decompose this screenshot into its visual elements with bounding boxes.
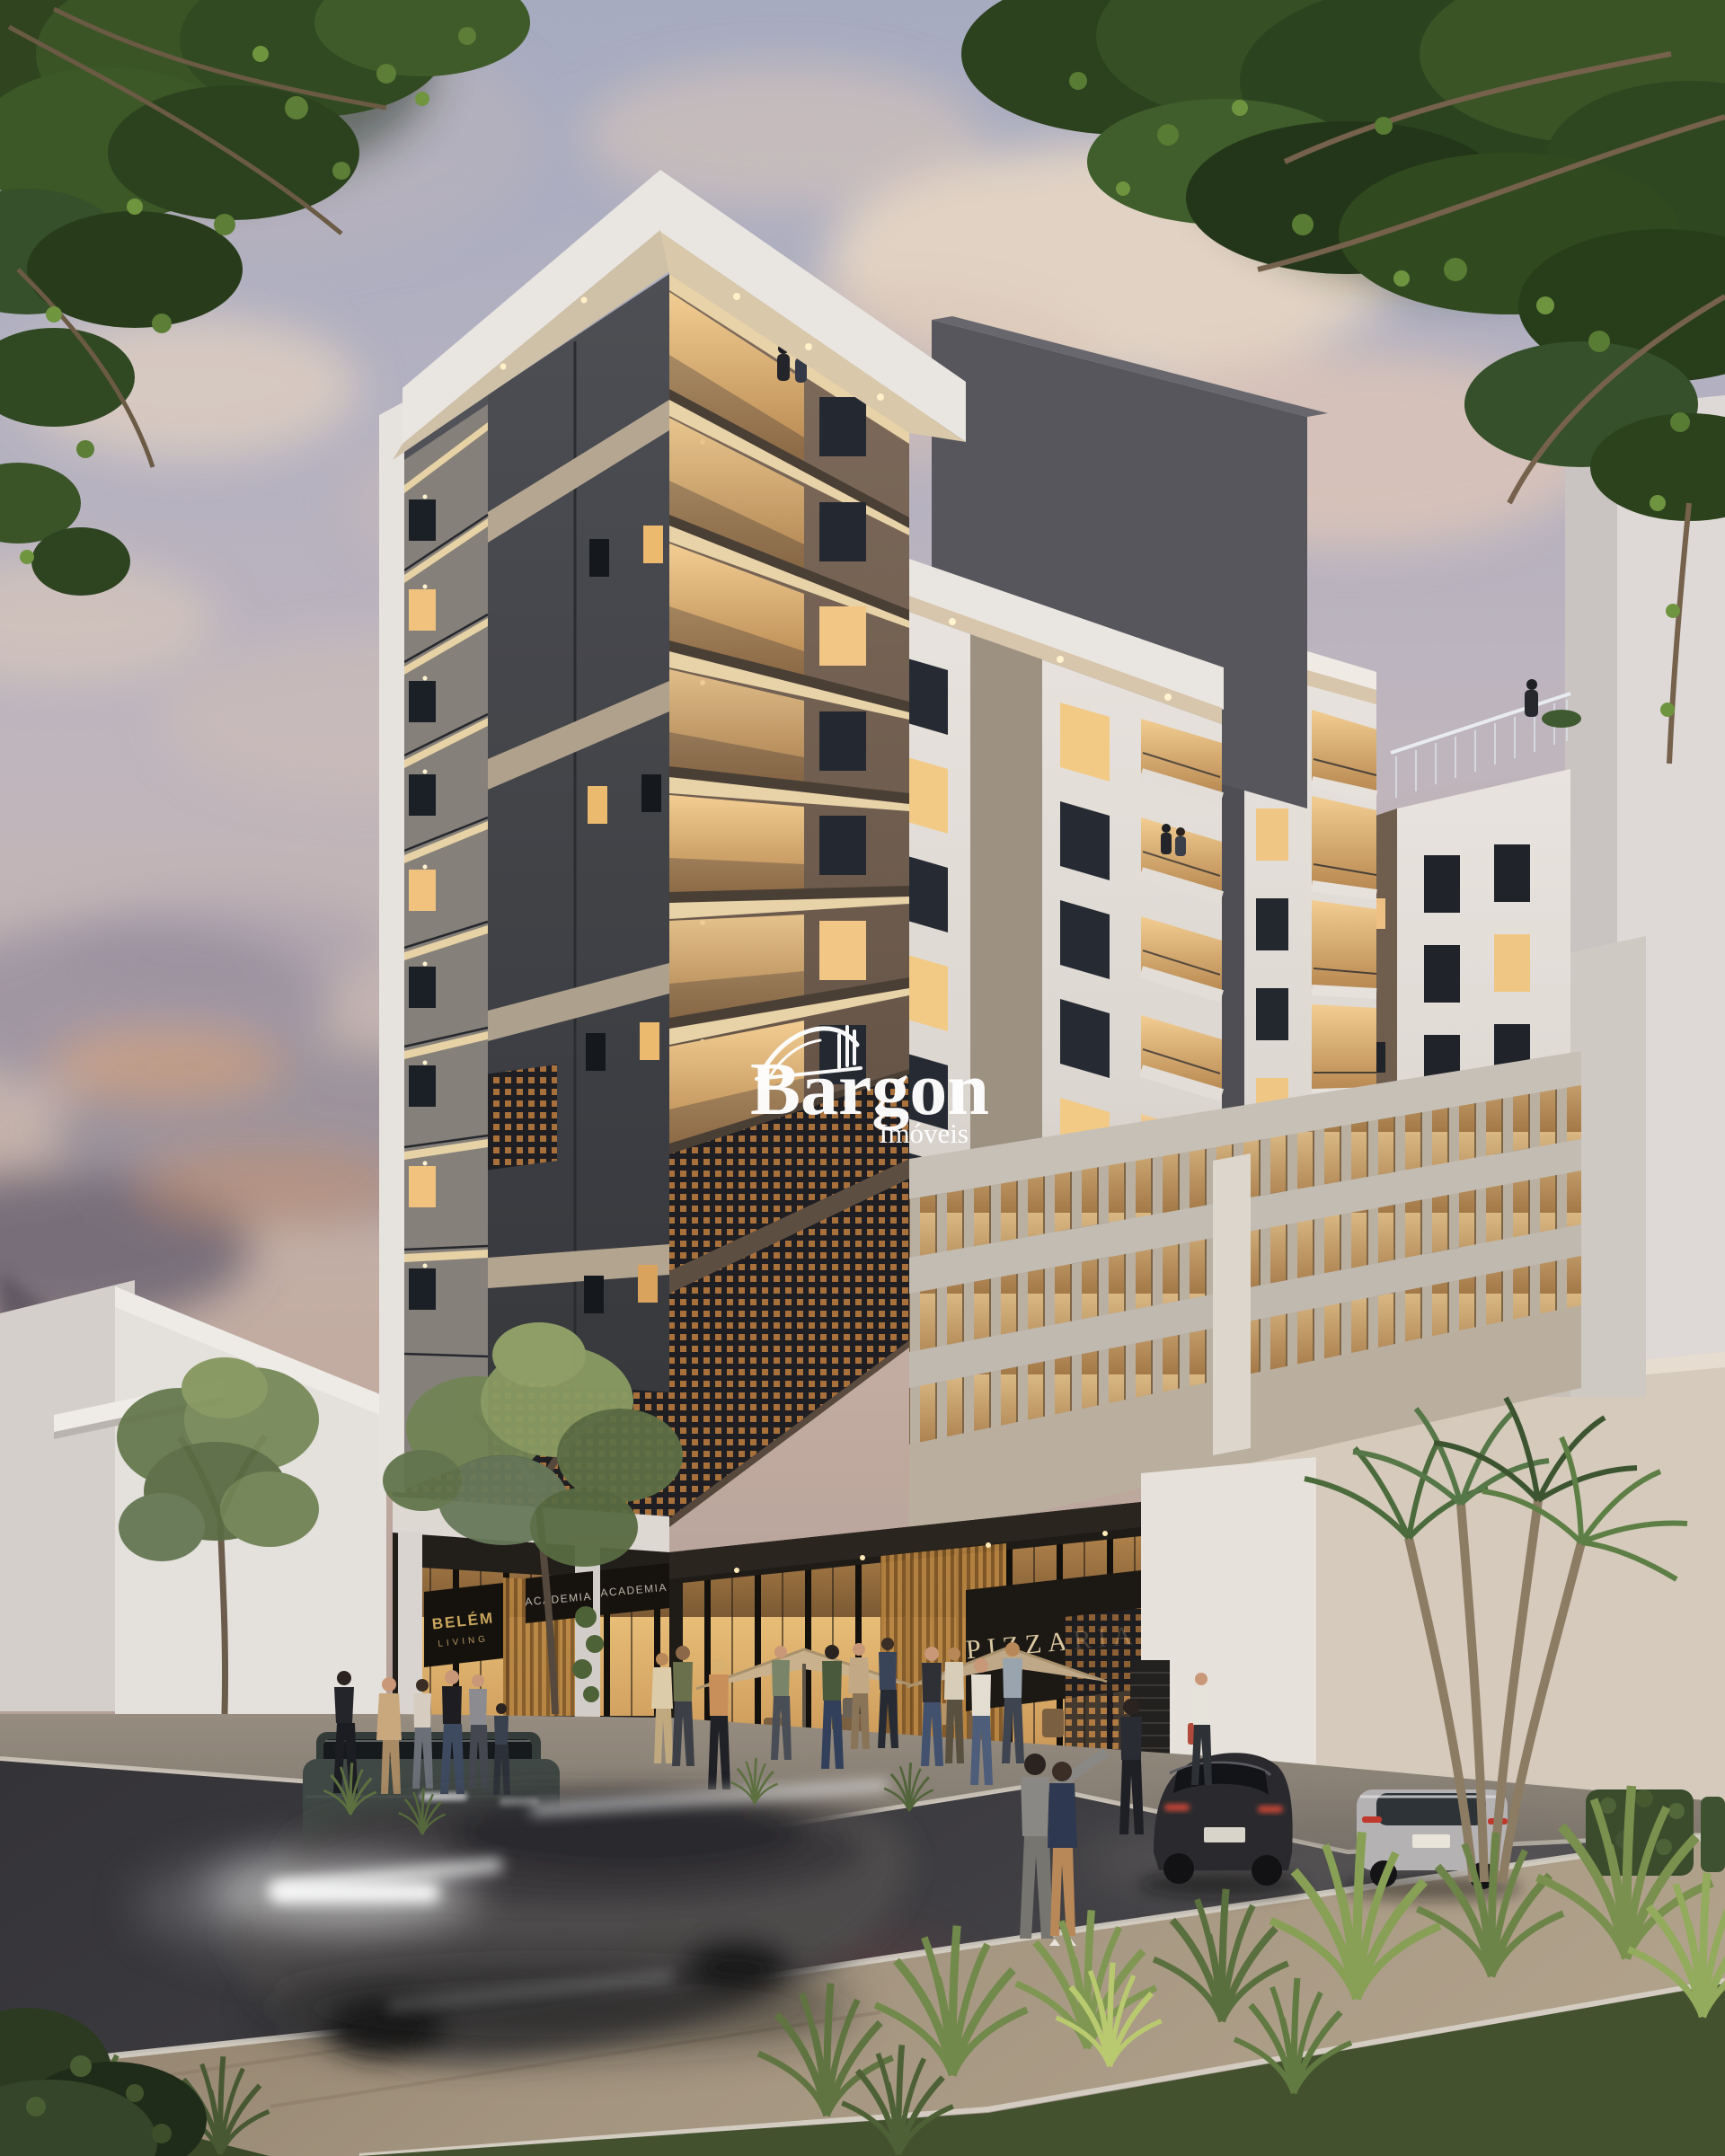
podium-pier xyxy=(1213,1153,1251,1455)
neighbor-wall-left xyxy=(0,1280,135,1711)
tower-a xyxy=(379,170,966,1527)
tower-d-wing xyxy=(1570,936,1646,1397)
tower-a-edge-pilaster xyxy=(379,402,404,1493)
architectural-render-scene: BELÉM LIVING ACADEMIA ACADEMIA PIZZARIA xyxy=(0,0,1725,2156)
sign-academia-2: ACADEMIA xyxy=(600,1563,669,1615)
watermark-subtitle: Imóveis xyxy=(879,1118,969,1149)
rooftop-person xyxy=(1525,679,1538,717)
sign-belem-living: BELÉM LIVING xyxy=(424,1583,503,1667)
tower-a-balcony-column xyxy=(404,404,488,1489)
